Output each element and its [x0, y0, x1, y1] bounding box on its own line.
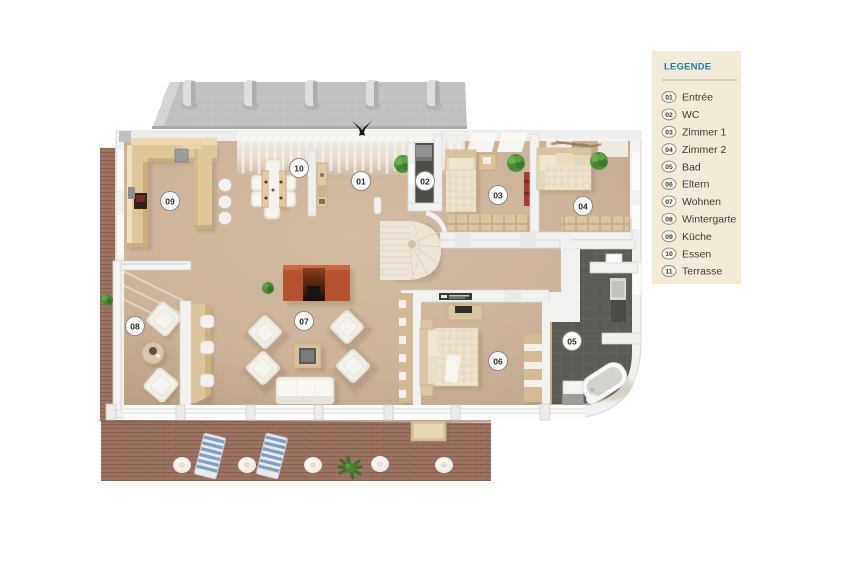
- svg-text:Essen: Essen: [682, 248, 711, 260]
- svg-text:04: 04: [578, 202, 588, 212]
- svg-text:WC: WC: [682, 109, 700, 121]
- svg-text:Zimmer 2: Zimmer 2: [682, 144, 726, 156]
- svg-text:Wintergarte: Wintergarte: [682, 214, 736, 226]
- svg-text:Bad: Bad: [682, 161, 701, 173]
- svg-text:07: 07: [665, 199, 673, 206]
- svg-text:01: 01: [665, 95, 673, 102]
- svg-text:08: 08: [665, 216, 673, 223]
- svg-text:02: 02: [420, 177, 430, 187]
- svg-text:02: 02: [665, 112, 673, 119]
- svg-text:09: 09: [165, 197, 175, 207]
- svg-text:08: 08: [130, 322, 140, 332]
- svg-text:10: 10: [665, 251, 673, 258]
- svg-text:03: 03: [665, 129, 673, 136]
- svg-text:10: 10: [294, 164, 304, 174]
- svg-text:07: 07: [299, 317, 309, 327]
- svg-text:06: 06: [665, 182, 673, 189]
- svg-text:11: 11: [665, 269, 672, 276]
- svg-text:05: 05: [567, 337, 577, 347]
- svg-text:Eltern: Eltern: [682, 179, 710, 191]
- svg-text:09: 09: [665, 234, 673, 241]
- svg-text:Küche: Küche: [682, 231, 712, 243]
- svg-text:Zimmer 1: Zimmer 1: [682, 127, 726, 139]
- svg-text:Entrée: Entrée: [682, 92, 713, 104]
- svg-text:04: 04: [665, 147, 673, 154]
- svg-text:Terrasse: Terrasse: [682, 266, 722, 278]
- svg-text:05: 05: [665, 164, 673, 171]
- svg-text:LEGENDE: LEGENDE: [664, 62, 711, 73]
- svg-text:03: 03: [493, 191, 503, 201]
- svg-text:Wohnen: Wohnen: [682, 196, 721, 208]
- svg-text:06: 06: [493, 357, 503, 367]
- svg-text:01: 01: [356, 177, 366, 187]
